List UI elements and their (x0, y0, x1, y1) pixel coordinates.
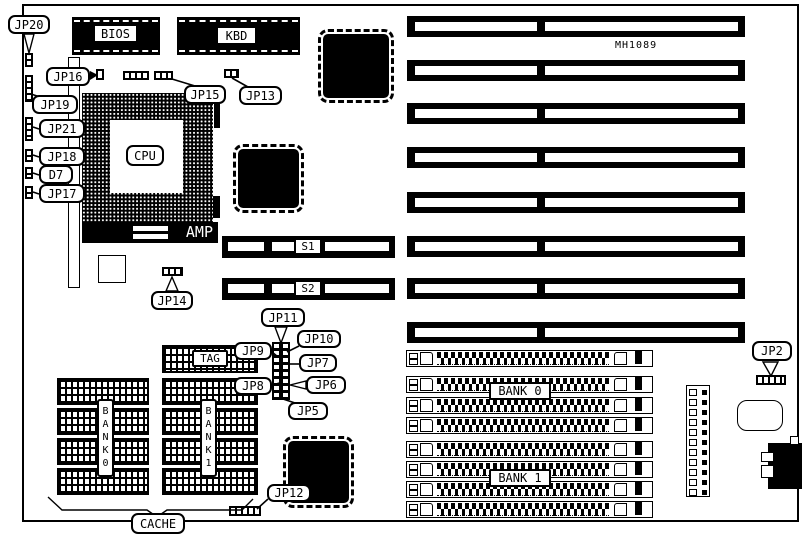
callout-cache: CACHE (131, 513, 185, 534)
callout-jp7: JP7 (299, 354, 337, 372)
callout-jp10: JP10 (297, 330, 341, 348)
jp18-jumper (25, 149, 33, 162)
isa-slot (407, 60, 745, 81)
callout-jp16: JP16 (46, 67, 90, 86)
s1-slot-label: S1 (294, 238, 322, 255)
socket-lever (213, 196, 220, 218)
callout-jp20: JP20 (8, 15, 50, 34)
callout-jp6: JP6 (306, 376, 346, 394)
jp20-jumper (25, 53, 33, 67)
callout-jp17: JP17 (39, 184, 85, 203)
battery (737, 400, 783, 431)
cpu-label: CPU (126, 145, 164, 166)
isa-slot (407, 16, 745, 37)
isa-slot (407, 147, 745, 168)
callout-jp9: JP9 (234, 342, 272, 360)
simm-socket (406, 350, 653, 367)
callout-jp11: JP11 (261, 308, 305, 327)
crystal-component (98, 255, 126, 283)
callout-jp12: JP12 (267, 484, 311, 502)
callout-jp14: JP14 (151, 291, 193, 310)
board-model-text: MH1089 (615, 40, 657, 51)
callout-jp8: JP8 (234, 377, 272, 395)
callout-jp2: JP2 (752, 341, 792, 361)
jp17-jumper (25, 186, 33, 199)
isa-slot (407, 278, 745, 299)
simm-socket (406, 501, 653, 518)
jp12-jumper (229, 506, 261, 516)
qfp-chip (323, 34, 389, 98)
callout-jp13: JP13 (239, 86, 282, 105)
callout-jp21: JP21 (39, 119, 85, 138)
callout-d7: D7 (39, 165, 73, 184)
callout-jp5: JP5 (288, 402, 328, 420)
jp14-jumper (162, 267, 183, 276)
jp2-jumper (756, 375, 786, 385)
socket-lever (214, 100, 220, 128)
din-pin (761, 452, 774, 462)
keyboard-controller-label: KBD (216, 26, 257, 45)
jumper-strip (123, 71, 149, 80)
amp-slot (133, 226, 168, 231)
isa-slot (407, 322, 745, 343)
callout-jp15: JP15 (184, 85, 226, 104)
din-pin (761, 465, 774, 478)
callout-jp19: JP19 (32, 95, 78, 114)
jumper-block-jp5-jp11 (272, 342, 290, 400)
cache-bank0-label: BANK0 (97, 399, 114, 477)
d7-jumper (25, 167, 33, 179)
motherboard-diagram: MH1089 BIOS KBD CPU AMP S1 S2 TAG (0, 0, 805, 541)
isa-slot (407, 236, 745, 257)
board-edge-notch (790, 436, 799, 445)
power-connector (686, 385, 710, 497)
jp21-jumper (25, 117, 33, 141)
cache-bank1-label: BANK1 (200, 399, 217, 477)
amp-slot (133, 234, 168, 239)
simm-socket (406, 441, 653, 458)
simm-bank1-label: BANK 1 (489, 469, 551, 487)
callout-jp18: JP18 (39, 147, 85, 166)
jp13-jumper (224, 69, 239, 78)
tag-ram-label: TAG (192, 350, 228, 367)
simm-bank0-label: BANK 0 (489, 382, 551, 400)
simm-socket (406, 417, 653, 434)
jp16-connector (96, 69, 104, 80)
s2-slot-label: S2 (294, 280, 322, 297)
isa-slot (407, 103, 745, 124)
jp15-jumper (154, 71, 173, 80)
qfp-chip (238, 149, 299, 208)
bios-chip-label: BIOS (93, 24, 138, 43)
amp-connector-label: AMP (186, 223, 213, 241)
isa-slot (407, 192, 745, 213)
